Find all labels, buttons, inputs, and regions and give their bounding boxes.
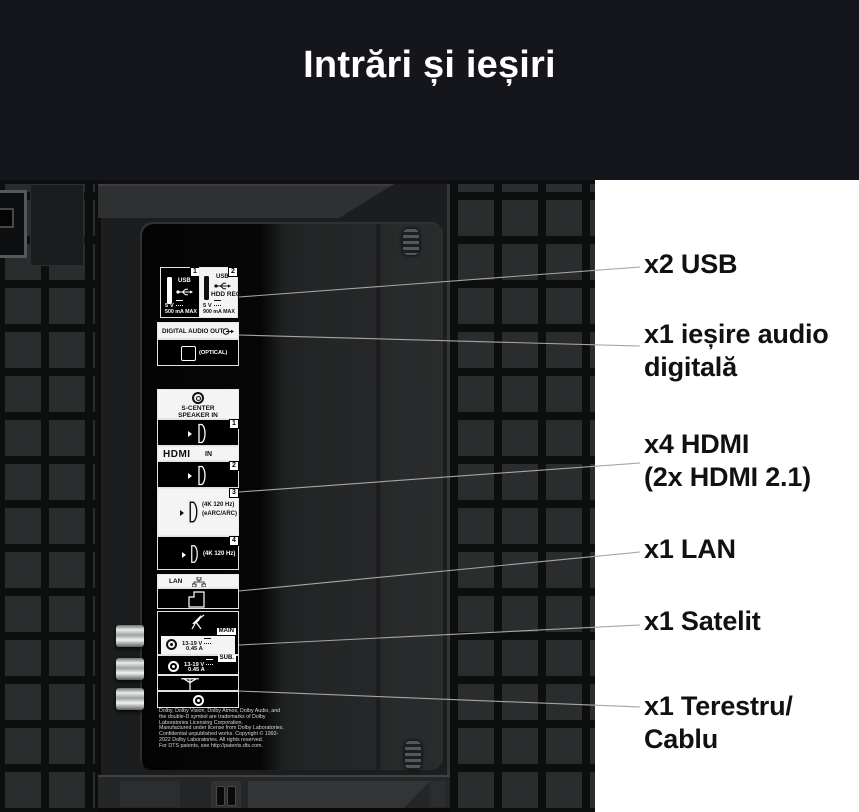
- vent-slots: [211, 781, 241, 809]
- mount-plate: [30, 184, 84, 266]
- coax-port-icon: [166, 639, 177, 650]
- hdmi-connector-icon: [187, 500, 200, 524]
- usb-slot-icon: [204, 276, 209, 300]
- terrestrial-port: [157, 691, 239, 708]
- hdmi3-4k-label: (4K 120 Hz): [202, 502, 234, 508]
- hdmi-connector-icon: [189, 544, 200, 564]
- annotation-hdmi: x4 HDMI (2x HDMI 2.1): [644, 428, 811, 494]
- lan-port: [157, 588, 239, 609]
- s-center-label: S-CENTER SPEAKER IN: [158, 405, 238, 419]
- ledge-segment: [430, 781, 446, 807]
- port-number-badge: 2: [228, 267, 238, 277]
- mount-bracket-notch: [0, 208, 14, 228]
- hdmi-in-strip: HDMI IN: [157, 446, 239, 461]
- s-center-speaker-in: S-CENTER SPEAKER IN: [157, 389, 239, 419]
- usb-trident-icon: [176, 287, 194, 297]
- page-title: Intrări și ieșiri: [0, 44, 859, 87]
- dc-icon: [176, 300, 183, 306]
- title-band: Intrări și ieșiri: [0, 0, 859, 180]
- optical-port: (OPTICAL): [157, 339, 239, 366]
- hdmi-connector-icon: [196, 423, 208, 444]
- satellite-sub-port: SUB. 13-19 V 0.45 A: [157, 655, 239, 675]
- optical-label: (OPTICAL): [199, 350, 227, 356]
- satellite-main-spec-box: 13-19 V 0.45 A: [161, 636, 235, 654]
- terrestrial-icon-box: [157, 675, 239, 691]
- hdd-rec-label: HDD REC: [211, 291, 241, 298]
- arrow-icon: [182, 552, 186, 558]
- usb-voltage: 5 V: [165, 300, 183, 309]
- dc-icon: [204, 638, 211, 644]
- digital-audio-out-label: DIGITAL AUDIO OUT: [162, 328, 223, 335]
- hdmi4-4k-label: (4K 120 Hz): [203, 551, 235, 557]
- antenna-icon: [178, 677, 202, 691]
- port-number-badge: 2: [229, 461, 239, 471]
- coax-port-icon: [193, 695, 204, 706]
- port-number-badge: 4: [229, 536, 239, 546]
- annotation-terrestrial: x1 Terestru/ Cablu: [644, 690, 793, 756]
- usb-voltage: 5 V: [203, 300, 221, 309]
- usb-port-1: 1 USB 5 V 500 mA MAX: [160, 267, 200, 318]
- speaker-terminal-icon: [192, 392, 204, 404]
- arrow-icon: [180, 510, 184, 516]
- tile-texture-left: [0, 180, 98, 812]
- main-tag: MAIN: [217, 628, 236, 635]
- side-connector: [116, 658, 144, 680]
- satellite-main-port: MAIN 13-19 V 0.45 A: [157, 611, 239, 655]
- hdmi-logo: HDMI: [163, 449, 191, 460]
- satellite-sub-amps: 0.45 A: [188, 667, 205, 673]
- usb-label: USB: [216, 274, 229, 280]
- optical-out-icon: [222, 327, 235, 336]
- optical-port-icon: [181, 346, 196, 361]
- usb-trident-icon: [214, 281, 232, 291]
- dc-icon: [214, 300, 221, 306]
- hdmi-port-3: 3 (4K 120 Hz) (eARC/ARC): [157, 488, 239, 536]
- annotation-usb: x2 USB: [644, 248, 737, 281]
- screw-icon: [405, 741, 421, 769]
- annotation-audio-out: x1 ieșire audio digitală: [644, 318, 829, 384]
- coax-port-icon: [168, 661, 179, 672]
- tile-texture-right: [450, 180, 595, 812]
- hdmi-port-4: 4 (4K 120 Hz): [157, 536, 239, 570]
- satellite-dish-icon: [189, 614, 209, 631]
- sub-tag: SUB.: [218, 655, 236, 662]
- digital-audio-out-strip: DIGITAL AUDIO OUT: [157, 322, 239, 339]
- usb-port-2: 2 USB HDD REC 5 V 900 mA MAX: [199, 267, 238, 318]
- annotation-satellite: x1 Satelit: [644, 605, 761, 638]
- ledge-shadow: [98, 808, 450, 812]
- hdmi-port-2: 2: [157, 461, 239, 488]
- arrow-icon: [188, 473, 192, 479]
- tv-io-diagram: Intrări și ieșiri 1 USB: [0, 0, 859, 812]
- screw-icon: [403, 229, 419, 255]
- dc-icon: [206, 659, 213, 665]
- hdmi3-earc-label: (eARC/ARC): [202, 511, 237, 517]
- usb-current: 500 mA MAX: [165, 309, 197, 315]
- hdmi-connector-icon: [196, 465, 208, 486]
- bottom-ledge: [98, 775, 450, 812]
- hdmi-port-1: 1: [157, 419, 239, 446]
- dolby-legal-text: Dolby, Dolby Vision, Dolby Atmos, Dolby …: [159, 709, 286, 750]
- network-icon: [192, 577, 206, 587]
- ledge-segment: [120, 781, 180, 807]
- port-number-badge: 1: [229, 419, 239, 429]
- satellite-main-amps: 0.45 A: [186, 646, 203, 652]
- side-connector: [116, 688, 144, 710]
- arrow-icon: [188, 431, 192, 437]
- hdmi-in-label: IN: [205, 451, 212, 458]
- rj45-port-icon: [188, 591, 210, 608]
- annotation-lan: x1 LAN: [644, 533, 736, 566]
- usb-current: 900 mA MAX: [203, 309, 235, 315]
- side-connector: [116, 625, 144, 647]
- tv-back: 1 USB 5 V 500 mA MAX 2 USB: [0, 180, 595, 812]
- lan-strip: LAN: [157, 574, 239, 588]
- port-number-badge: 3: [229, 488, 239, 498]
- usb-label: USB: [178, 278, 191, 284]
- lan-label: LAN: [169, 578, 182, 585]
